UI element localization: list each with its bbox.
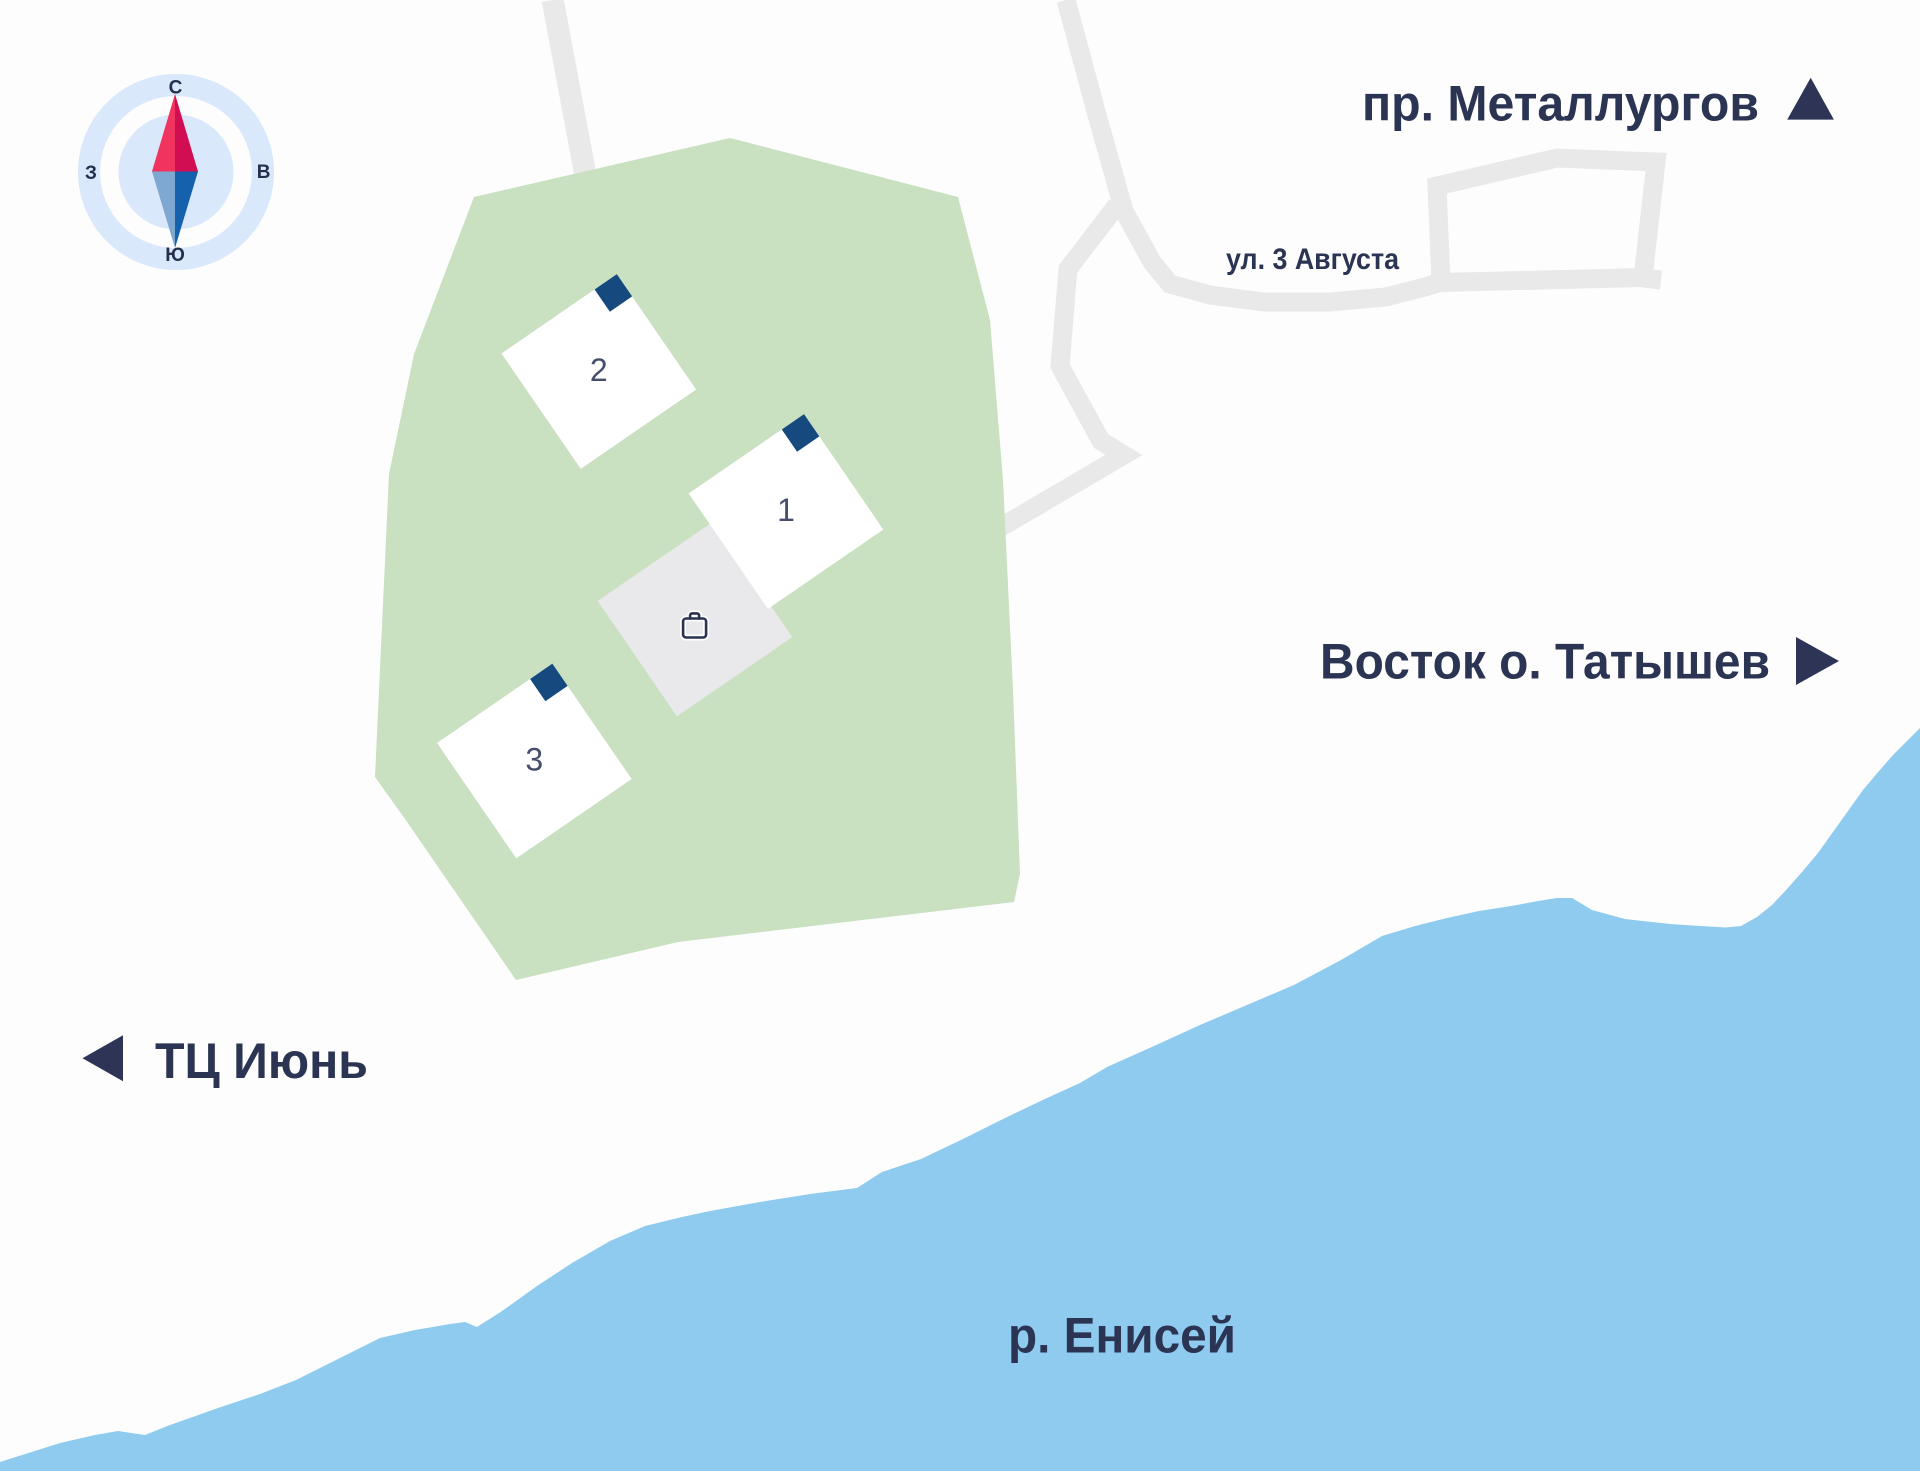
svg-text:З: З [85,163,97,184]
svg-text:3: 3 [525,742,543,778]
svg-text:ТЦ Июнь: ТЦ Июнь [155,1033,368,1089]
svg-text:Восток о. Татышев: Восток о. Татышев [1320,634,1770,690]
svg-text:ул. 3 Августа: ул. 3 Августа [1226,243,1399,276]
svg-text:В: В [257,162,271,183]
svg-text:р. Енисей: р. Енисей [1008,1308,1236,1364]
svg-text:Ю: Ю [165,245,185,266]
svg-text:2: 2 [590,352,608,388]
svg-text:С: С [169,78,183,99]
svg-text:пр. Металлургов: пр. Металлургов [1362,76,1759,132]
svg-text:1: 1 [777,492,795,528]
